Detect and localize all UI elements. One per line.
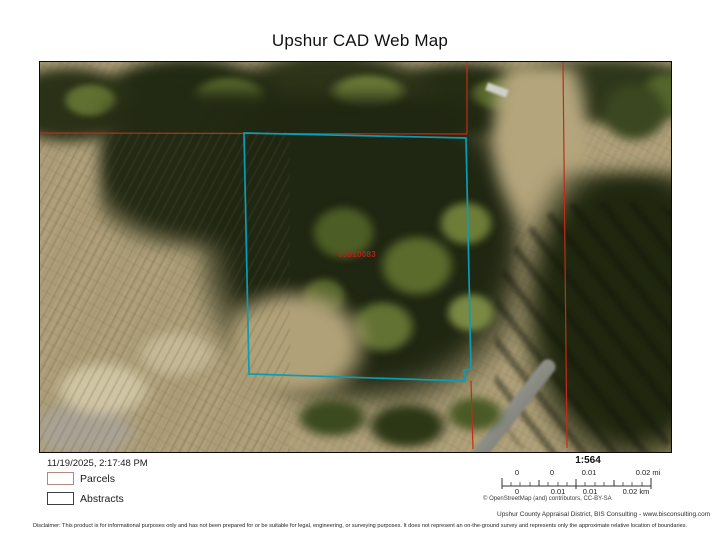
parcel-boundary-line (563, 62, 567, 448)
osm-attribution: © OpenStreetMap (and) contributors, CC-B… (483, 496, 612, 502)
parcels-swatch (47, 472, 74, 485)
print-page: Upshur CAD Web Map 05310083 (0, 0, 720, 556)
abstracts-swatch (47, 492, 74, 505)
credits: Upshur County Appraisal District, BIS Co… (497, 511, 710, 518)
scale-tick-label: 0.01 (551, 487, 566, 496)
parcel-boundary-line (471, 381, 473, 449)
scale-ratio: 1:564 (495, 455, 681, 466)
scale-tick-label: 0.01 (582, 468, 597, 477)
scale-tick-label: 0 (515, 468, 519, 477)
legend-label: Abstracts (80, 493, 124, 505)
scale-tick-label: 0.01 (583, 487, 598, 496)
parcel-id-label: 05310083 (338, 250, 376, 259)
timestamp: 11/19/2025, 2:17:48 PM (47, 458, 148, 469)
scale-tick-label: 0.02 mi (636, 468, 661, 477)
legend-label: Parcels (80, 473, 115, 485)
scale-tick-label: 0 (515, 487, 519, 496)
scalebar: 1:564 0 0 0.01 0.02 mi 0 0.01 0.01 0.02 … (495, 455, 690, 501)
disclaimer: Disclaimer: This product is for informat… (0, 523, 720, 529)
scale-tick-label: 0 (550, 468, 554, 477)
map-frame: 05310083 (39, 61, 672, 453)
scale-tick-label: 0.02 km (623, 487, 650, 496)
page-title: Upshur CAD Web Map (0, 31, 720, 51)
